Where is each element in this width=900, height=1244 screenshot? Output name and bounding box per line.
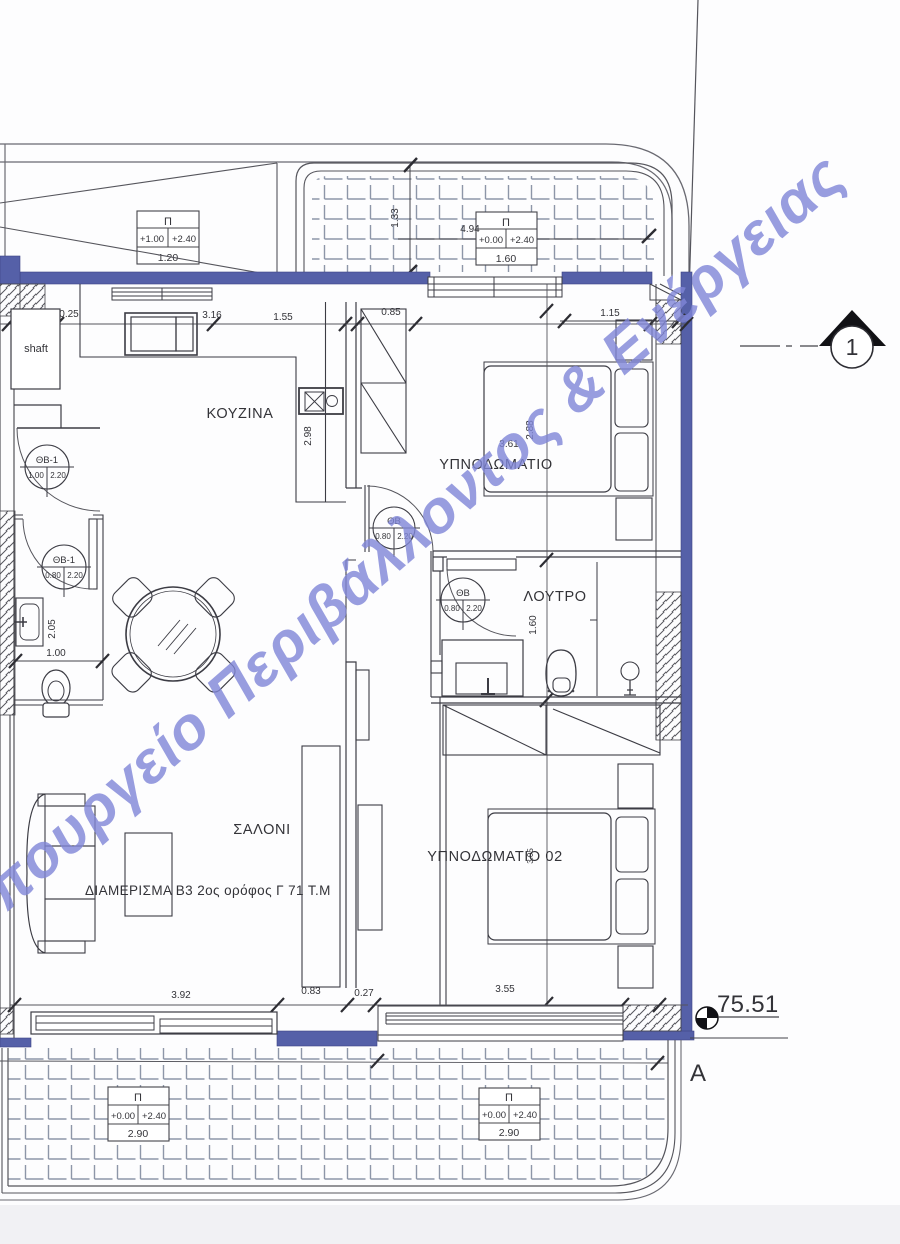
svg-text:Π: Π bbox=[134, 1092, 142, 1104]
svg-text:+0.00: +0.00 bbox=[482, 1110, 506, 1121]
svg-text:3.05: 3.05 bbox=[526, 848, 535, 864]
svg-text:3.92: 3.92 bbox=[171, 990, 191, 1001]
svg-text:1.00: 1.00 bbox=[46, 648, 66, 659]
svg-text:A: A bbox=[690, 1060, 706, 1087]
svg-text:1: 1 bbox=[846, 334, 859, 360]
svg-text:2.20: 2.20 bbox=[67, 571, 83, 580]
svg-text:75.51: 75.51 bbox=[717, 991, 779, 1018]
svg-text:2.20: 2.20 bbox=[466, 604, 482, 613]
svg-text:0.80: 0.80 bbox=[444, 604, 460, 613]
svg-text:+2.40: +2.40 bbox=[172, 234, 196, 245]
svg-text:ΘΒ: ΘΒ bbox=[456, 588, 470, 599]
svg-text:2.20: 2.20 bbox=[50, 471, 66, 480]
svg-text:ΛΟΥΤΡΟ: ΛΟΥΤΡΟ bbox=[523, 589, 586, 605]
svg-text:ΘΒ-1: ΘΒ-1 bbox=[53, 555, 75, 566]
svg-text:1.33: 1.33 bbox=[390, 208, 401, 228]
svg-text:Π: Π bbox=[164, 216, 172, 228]
svg-text:0.80: 0.80 bbox=[45, 571, 61, 580]
svg-text:1.60: 1.60 bbox=[528, 615, 539, 635]
svg-text:ΥΠΝΟΔΩΜΑΤΙΟ 02: ΥΠΝΟΔΩΜΑΤΙΟ 02 bbox=[427, 849, 563, 865]
svg-text:shaft: shaft bbox=[24, 343, 48, 355]
svg-text:1.60: 1.60 bbox=[496, 253, 517, 265]
svg-text:ΘΒ-1: ΘΒ-1 bbox=[36, 455, 58, 466]
svg-text:1.00: 1.00 bbox=[28, 471, 44, 480]
svg-text:+0.00: +0.00 bbox=[111, 1111, 135, 1122]
svg-text:Π: Π bbox=[502, 217, 510, 229]
svg-text:3.16: 3.16 bbox=[202, 310, 222, 321]
svg-text:0.25: 0.25 bbox=[59, 309, 79, 320]
svg-text:2.90: 2.90 bbox=[128, 1128, 149, 1140]
svg-text:0.83: 0.83 bbox=[301, 986, 321, 997]
svg-text:ΔΙΑΜΕΡΙΣΜΑ Β3 2ος ορόφος Γ 71: ΔΙΑΜΕΡΙΣΜΑ Β3 2ος ορόφος Γ 71 Τ.Μ bbox=[85, 883, 331, 898]
svg-text:+2.40: +2.40 bbox=[513, 1110, 537, 1121]
svg-text:ΣΑΛΟΝΙ: ΣΑΛΟΝΙ bbox=[233, 822, 290, 838]
svg-text:ΚΟΥΖΙΝΑ: ΚΟΥΖΙΝΑ bbox=[207, 406, 274, 422]
svg-text:4.94: 4.94 bbox=[460, 224, 480, 235]
svg-text:+0.00: +0.00 bbox=[479, 235, 503, 246]
svg-text:+2.40: +2.40 bbox=[142, 1111, 166, 1122]
svg-text:+1.00: +1.00 bbox=[140, 234, 164, 245]
svg-text:3.55: 3.55 bbox=[495, 984, 515, 995]
svg-text:2.98: 2.98 bbox=[303, 426, 314, 446]
svg-text:1.55: 1.55 bbox=[273, 312, 293, 323]
svg-text:+2.40: +2.40 bbox=[510, 235, 534, 246]
svg-text:2.05: 2.05 bbox=[47, 619, 58, 639]
svg-text:0.27: 0.27 bbox=[354, 988, 374, 999]
svg-text:Π: Π bbox=[505, 1092, 513, 1104]
svg-text:2.90: 2.90 bbox=[499, 1127, 520, 1139]
